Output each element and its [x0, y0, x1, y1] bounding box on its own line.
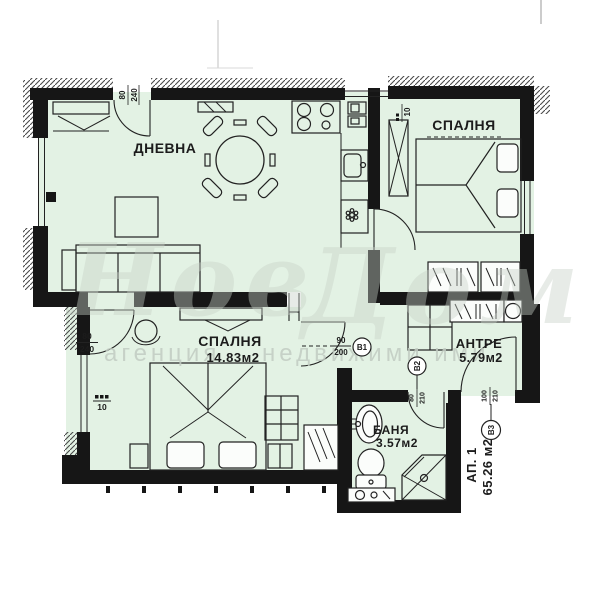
- svg-text:80: 80: [82, 331, 92, 341]
- svg-text:200: 200: [334, 348, 348, 357]
- bedroom2-area: 14.83м2: [207, 350, 260, 365]
- living-label: ДНЕВНА: [134, 140, 197, 156]
- svg-text:В2: В2: [413, 360, 422, 371]
- watermark: Нов Дом агенция недвижими ими: [65, 221, 587, 367]
- apartment-area: 65.26 м2: [480, 439, 495, 496]
- svg-text:В3: В3: [487, 424, 496, 435]
- apartment-number: АП. 1: [464, 447, 479, 483]
- hallway-area: 5.79м2: [459, 351, 503, 365]
- floor-plan-page: Нов Дом агенция недвижими ими ДНЕВНА СПА…: [0, 0, 600, 600]
- bath-cabinet: [348, 488, 395, 502]
- watermark-word1: Нов: [65, 221, 319, 339]
- svg-text:90: 90: [337, 336, 346, 345]
- svg-text:240: 240: [130, 88, 139, 102]
- bedroom1-label: СПАЛНЯ: [432, 117, 495, 133]
- floor-plan-drawing: Нов Дом агенция недвижими ими ДНЕВНА СПА…: [0, 0, 600, 600]
- svg-text:10: 10: [403, 107, 412, 116]
- bedroom2-label: СПАЛНЯ: [198, 333, 261, 349]
- svg-text:210: 210: [420, 392, 427, 404]
- svg-text:80: 80: [409, 394, 416, 402]
- svg-text:210: 210: [493, 390, 500, 402]
- bathroom-label: БАНЯ: [373, 423, 409, 437]
- door-tag-v2: В2: [408, 357, 426, 375]
- svg-text:10: 10: [97, 402, 107, 412]
- svg-text:240: 240: [80, 344, 94, 354]
- toilet: [356, 449, 386, 489]
- svg-text:100: 100: [482, 390, 489, 402]
- svg-text:В1: В1: [357, 343, 368, 352]
- wardrobe-2: [304, 425, 338, 470]
- door-tag-v3: В3: [482, 421, 501, 440]
- svg-text:80: 80: [118, 90, 127, 99]
- bathroom-area: 3.57м2: [376, 436, 418, 450]
- watermark-word2: Дом: [297, 225, 587, 348]
- door-tag-v1: В1: [353, 338, 371, 356]
- hallway-label: АНТРЕ: [456, 336, 503, 351]
